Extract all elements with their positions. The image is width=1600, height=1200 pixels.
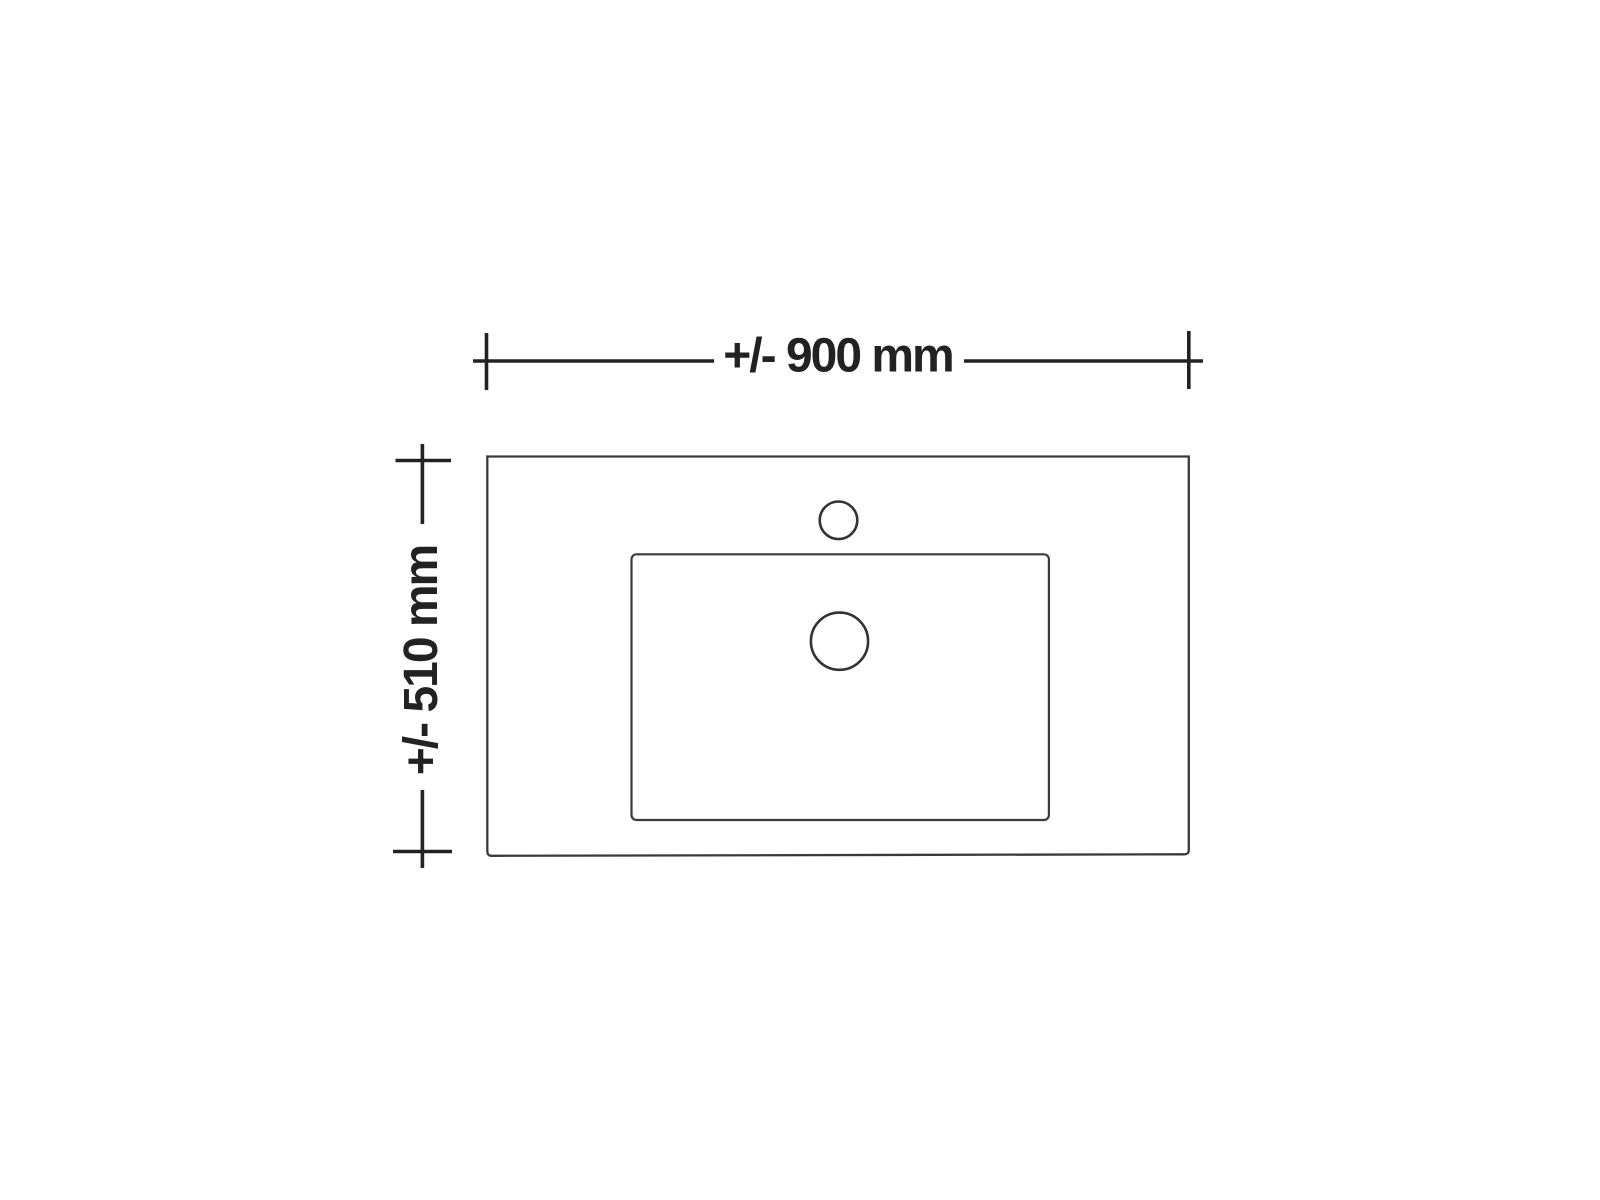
svg-text:+/- 510 mm: +/- 510 mm (395, 546, 448, 775)
svg-text:+/- 900 mm: +/- 900 mm (723, 330, 952, 383)
